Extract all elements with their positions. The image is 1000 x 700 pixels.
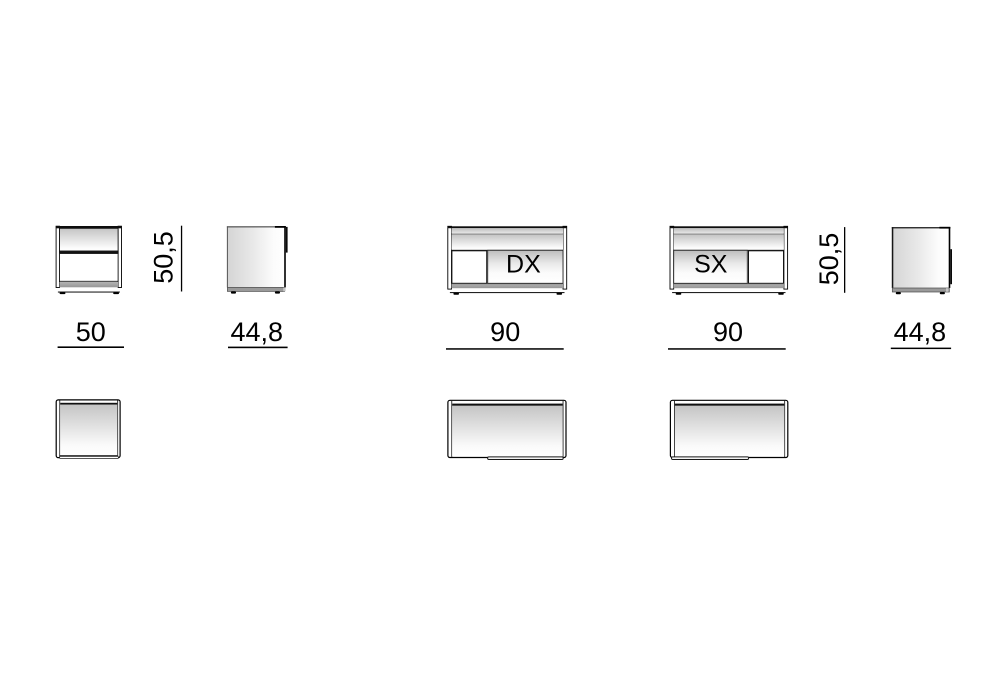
svg-text:44,8: 44,8	[894, 317, 947, 347]
svg-text:44,8: 44,8	[231, 317, 284, 347]
svg-text:50,5: 50,5	[814, 233, 844, 286]
svg-text:DX: DX	[506, 250, 541, 278]
svg-text:SX: SX	[694, 250, 728, 278]
svg-text:50,5: 50,5	[148, 231, 178, 284]
svg-text:50: 50	[76, 317, 106, 347]
svg-text:90: 90	[713, 317, 743, 347]
svg-text:90: 90	[490, 317, 520, 347]
